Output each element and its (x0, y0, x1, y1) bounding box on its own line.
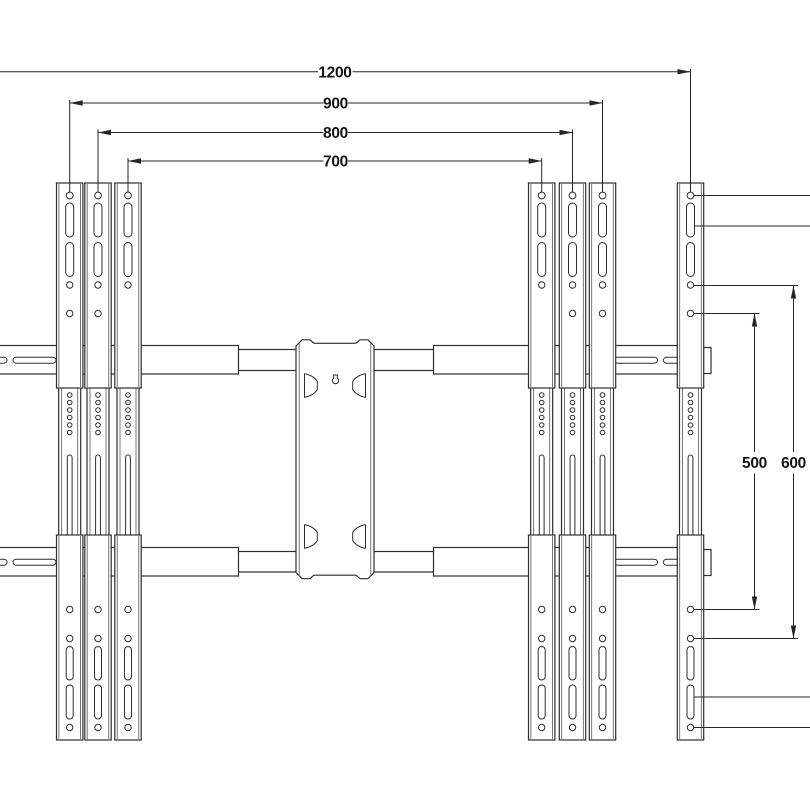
upper-crossbar-inner-tube-left (236, 350, 298, 371)
dimension-900: 900 (70, 96, 603, 113)
lower-crossbar-inner-tube-left (236, 552, 298, 573)
wall-plate (296, 340, 374, 579)
crossbar-slot (13, 559, 56, 565)
upper-crossbar-inner-tube-right (372, 350, 435, 371)
dimension-700: 700 (128, 154, 542, 171)
dimension-label-1200: 1200 (318, 64, 351, 81)
lower-crossbar-inner-tube-right (372, 552, 435, 573)
crossbar-slot (615, 559, 658, 565)
dimension-label-800: 800 (323, 125, 348, 142)
dimension-500: 500 (742, 314, 767, 610)
dimension-label-500: 500 (742, 455, 767, 472)
crossbar-slot (615, 357, 658, 363)
dimension-600: 600 (781, 286, 806, 639)
crossbar-slot (13, 357, 56, 363)
dimension-label-900: 900 (323, 96, 348, 113)
dimension-800: 800 (98, 125, 573, 142)
crossbar-slot (0, 559, 7, 565)
dimension-label-600: 600 (781, 455, 806, 472)
extension-lines (70, 69, 691, 192)
wall-mount-bracket-drawing: 1200 900 800 700 (0, 0, 810, 810)
crossbar-slot (0, 357, 7, 363)
keyhole-slot (332, 375, 338, 384)
technical-drawing-canvas: 1200 900 800 700 (0, 0, 810, 810)
dimension-1200: 1200 (0, 64, 691, 81)
rail-strips-layer (59, 386, 702, 539)
dimension-label-700: 700 (323, 154, 348, 171)
